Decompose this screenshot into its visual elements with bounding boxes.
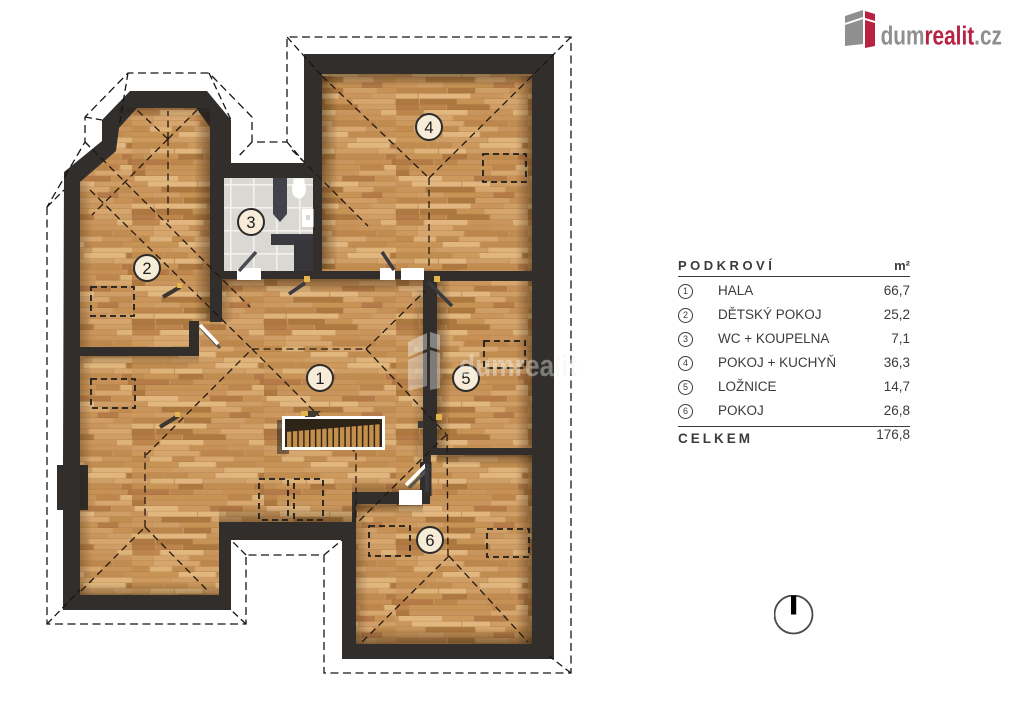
- svg-text:3: 3: [246, 214, 255, 232]
- svg-text:1: 1: [315, 370, 324, 388]
- svg-text:6: 6: [425, 532, 434, 550]
- svg-text:dumrealit.cz: dumrealit.cz: [881, 21, 1002, 50]
- svg-text:2: 2: [142, 260, 151, 278]
- svg-text:4: 4: [424, 119, 433, 137]
- svg-text:dumrealit: dumrealit: [459, 349, 578, 383]
